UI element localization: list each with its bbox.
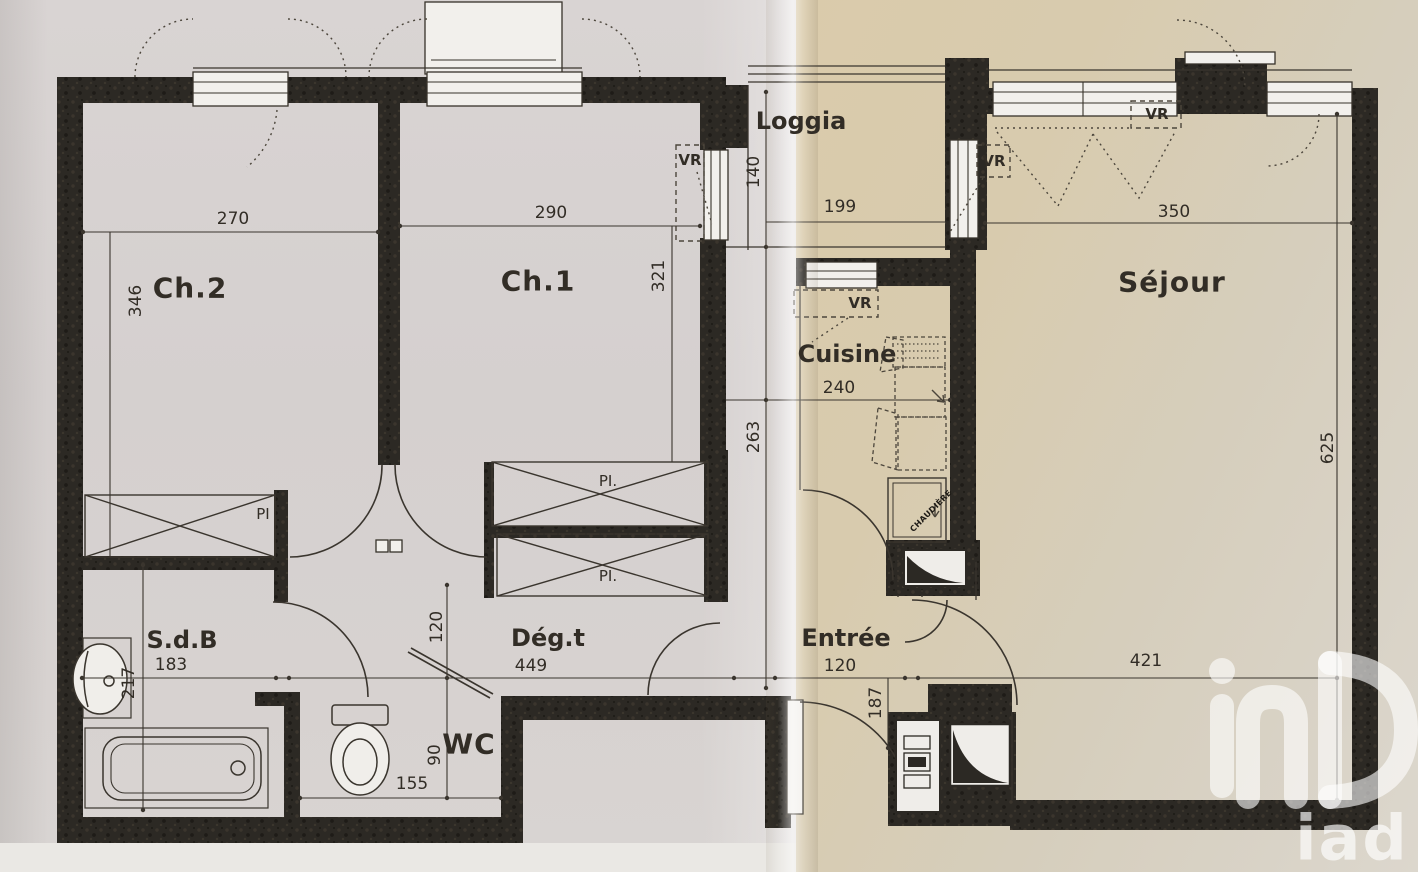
structure-lines (193, 66, 1352, 800)
dim-sejour-width-bottom: 421 (1130, 651, 1162, 671)
room-label-ch1: Ch.1 (501, 265, 576, 298)
bathtub-icon (103, 737, 261, 800)
vr-label-cuisine: VR (848, 294, 871, 312)
closet-label-ch2: PI (256, 505, 269, 523)
dim-cuisine-depth: 263 (744, 421, 764, 453)
closet-label-hall-2: PI. (599, 567, 617, 585)
dim-ch2-depth: 346 (126, 285, 146, 317)
vr-label-loggia: VR (982, 152, 1005, 170)
dim-ch1-width: 290 (535, 203, 567, 223)
dim-sejour-width-top: 350 (1158, 202, 1190, 222)
entry-door-leaf (787, 700, 803, 814)
bathtub-alcove (85, 728, 268, 808)
room-label-ch2: Ch.2 (153, 272, 228, 305)
room-label-degagement: Dég.t (511, 624, 585, 652)
dim-cuisine-width: 240 (823, 378, 855, 398)
door-hall-entree (648, 623, 720, 695)
door-cuisine (803, 490, 893, 580)
vr-label-sejour: VR (1145, 105, 1168, 123)
iad-logo-text: iad (1295, 802, 1408, 872)
dim-wc-depth: 90 (425, 744, 445, 766)
dim-wc-width: 155 (396, 774, 428, 794)
door-sejour-small-leaf (905, 600, 947, 642)
dim-degagement-width: 449 (515, 656, 547, 676)
dim-degagement-depth: 120 (427, 611, 447, 643)
room-label-wc: WC (442, 728, 495, 761)
closet-label-hall-1: PI. (599, 472, 617, 490)
door-ch1 (395, 465, 487, 557)
door-wc-leaf (408, 652, 490, 698)
room-label-sejour: Séjour (1118, 266, 1226, 299)
dim-entree-width: 120 (824, 656, 856, 676)
window-tab-top (425, 2, 562, 74)
room-label-entree: Entrée (801, 624, 890, 652)
dim-sejour-depth: 625 (1318, 432, 1338, 464)
dim-sdb-depth: 217 (119, 667, 139, 699)
dim-sdb-width: 183 (155, 655, 187, 675)
toilet-icon (331, 723, 389, 795)
bathroom-fixtures (73, 638, 389, 808)
door-ch2 (290, 465, 382, 557)
floor-plan-drawing (0, 0, 1418, 872)
toilet-tank (332, 705, 388, 725)
door-sdb (273, 602, 368, 697)
room-label-cuisine: Cuisine (798, 340, 897, 368)
dim-entree-depth: 187 (866, 687, 886, 719)
room-label-loggia: Loggia (756, 107, 847, 135)
dim-loggia-depth: 140 (744, 156, 764, 188)
dim-loggia-width: 199 (824, 197, 856, 217)
room-label-sdb: S.d.B (147, 626, 218, 654)
dim-ch1-depth: 321 (649, 260, 669, 292)
vr-label-ch1: VR (678, 151, 701, 169)
floor-plan-scan: Ch.2 Ch.1 Séjour Cuisine Loggia S.d.B Dé… (0, 0, 1418, 872)
dim-ch2-width: 270 (217, 209, 249, 229)
